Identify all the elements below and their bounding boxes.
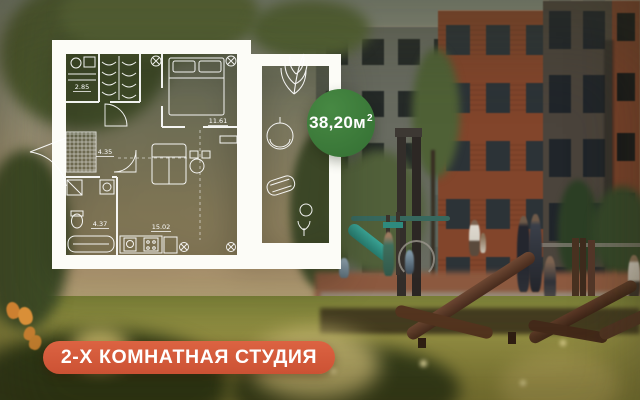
room-area-label: 4.35: [98, 148, 112, 156]
lounger-back: [597, 301, 640, 341]
child-figure: [480, 233, 486, 253]
playground-beam: [351, 216, 450, 221]
apartment-type-banner: 2-Х КОМНАТНАЯ СТУДИЯ: [43, 341, 335, 374]
butterfly-wing: [16, 305, 34, 326]
room-area-label: 11.61: [209, 117, 228, 125]
bokeh-sparkle: [520, 380, 526, 386]
bokeh-sparkle: [560, 340, 566, 346]
lounger-leg: [508, 332, 516, 344]
room-area-label: 2.85: [75, 83, 89, 91]
pergola-beam: [395, 128, 422, 137]
lounger-leg: [418, 338, 426, 348]
banner-label: 2-Х КОМНАТНАЯ СТУДИЯ: [61, 346, 317, 369]
wooden-lounger: [600, 300, 640, 350]
room-area-label: 4.37: [93, 220, 107, 228]
bokeh-sparkle: [330, 368, 336, 374]
bokeh-sparkle: [420, 360, 427, 367]
floor-plan: 2.85 4.35 4.37 11.61 15.02: [20, 40, 341, 269]
area-value: 38,20м: [309, 113, 366, 133]
room-area-label: 15.02: [152, 223, 171, 231]
woman-figure: [469, 220, 480, 256]
hall-tile-hatch: [66, 132, 96, 172]
slide-platform: [383, 222, 403, 228]
promo-image: 2.85 4.35 4.37 11.61 15.02 38,20м2 2-Х К…: [0, 0, 640, 400]
area-badge: 38,20м2: [307, 89, 375, 157]
